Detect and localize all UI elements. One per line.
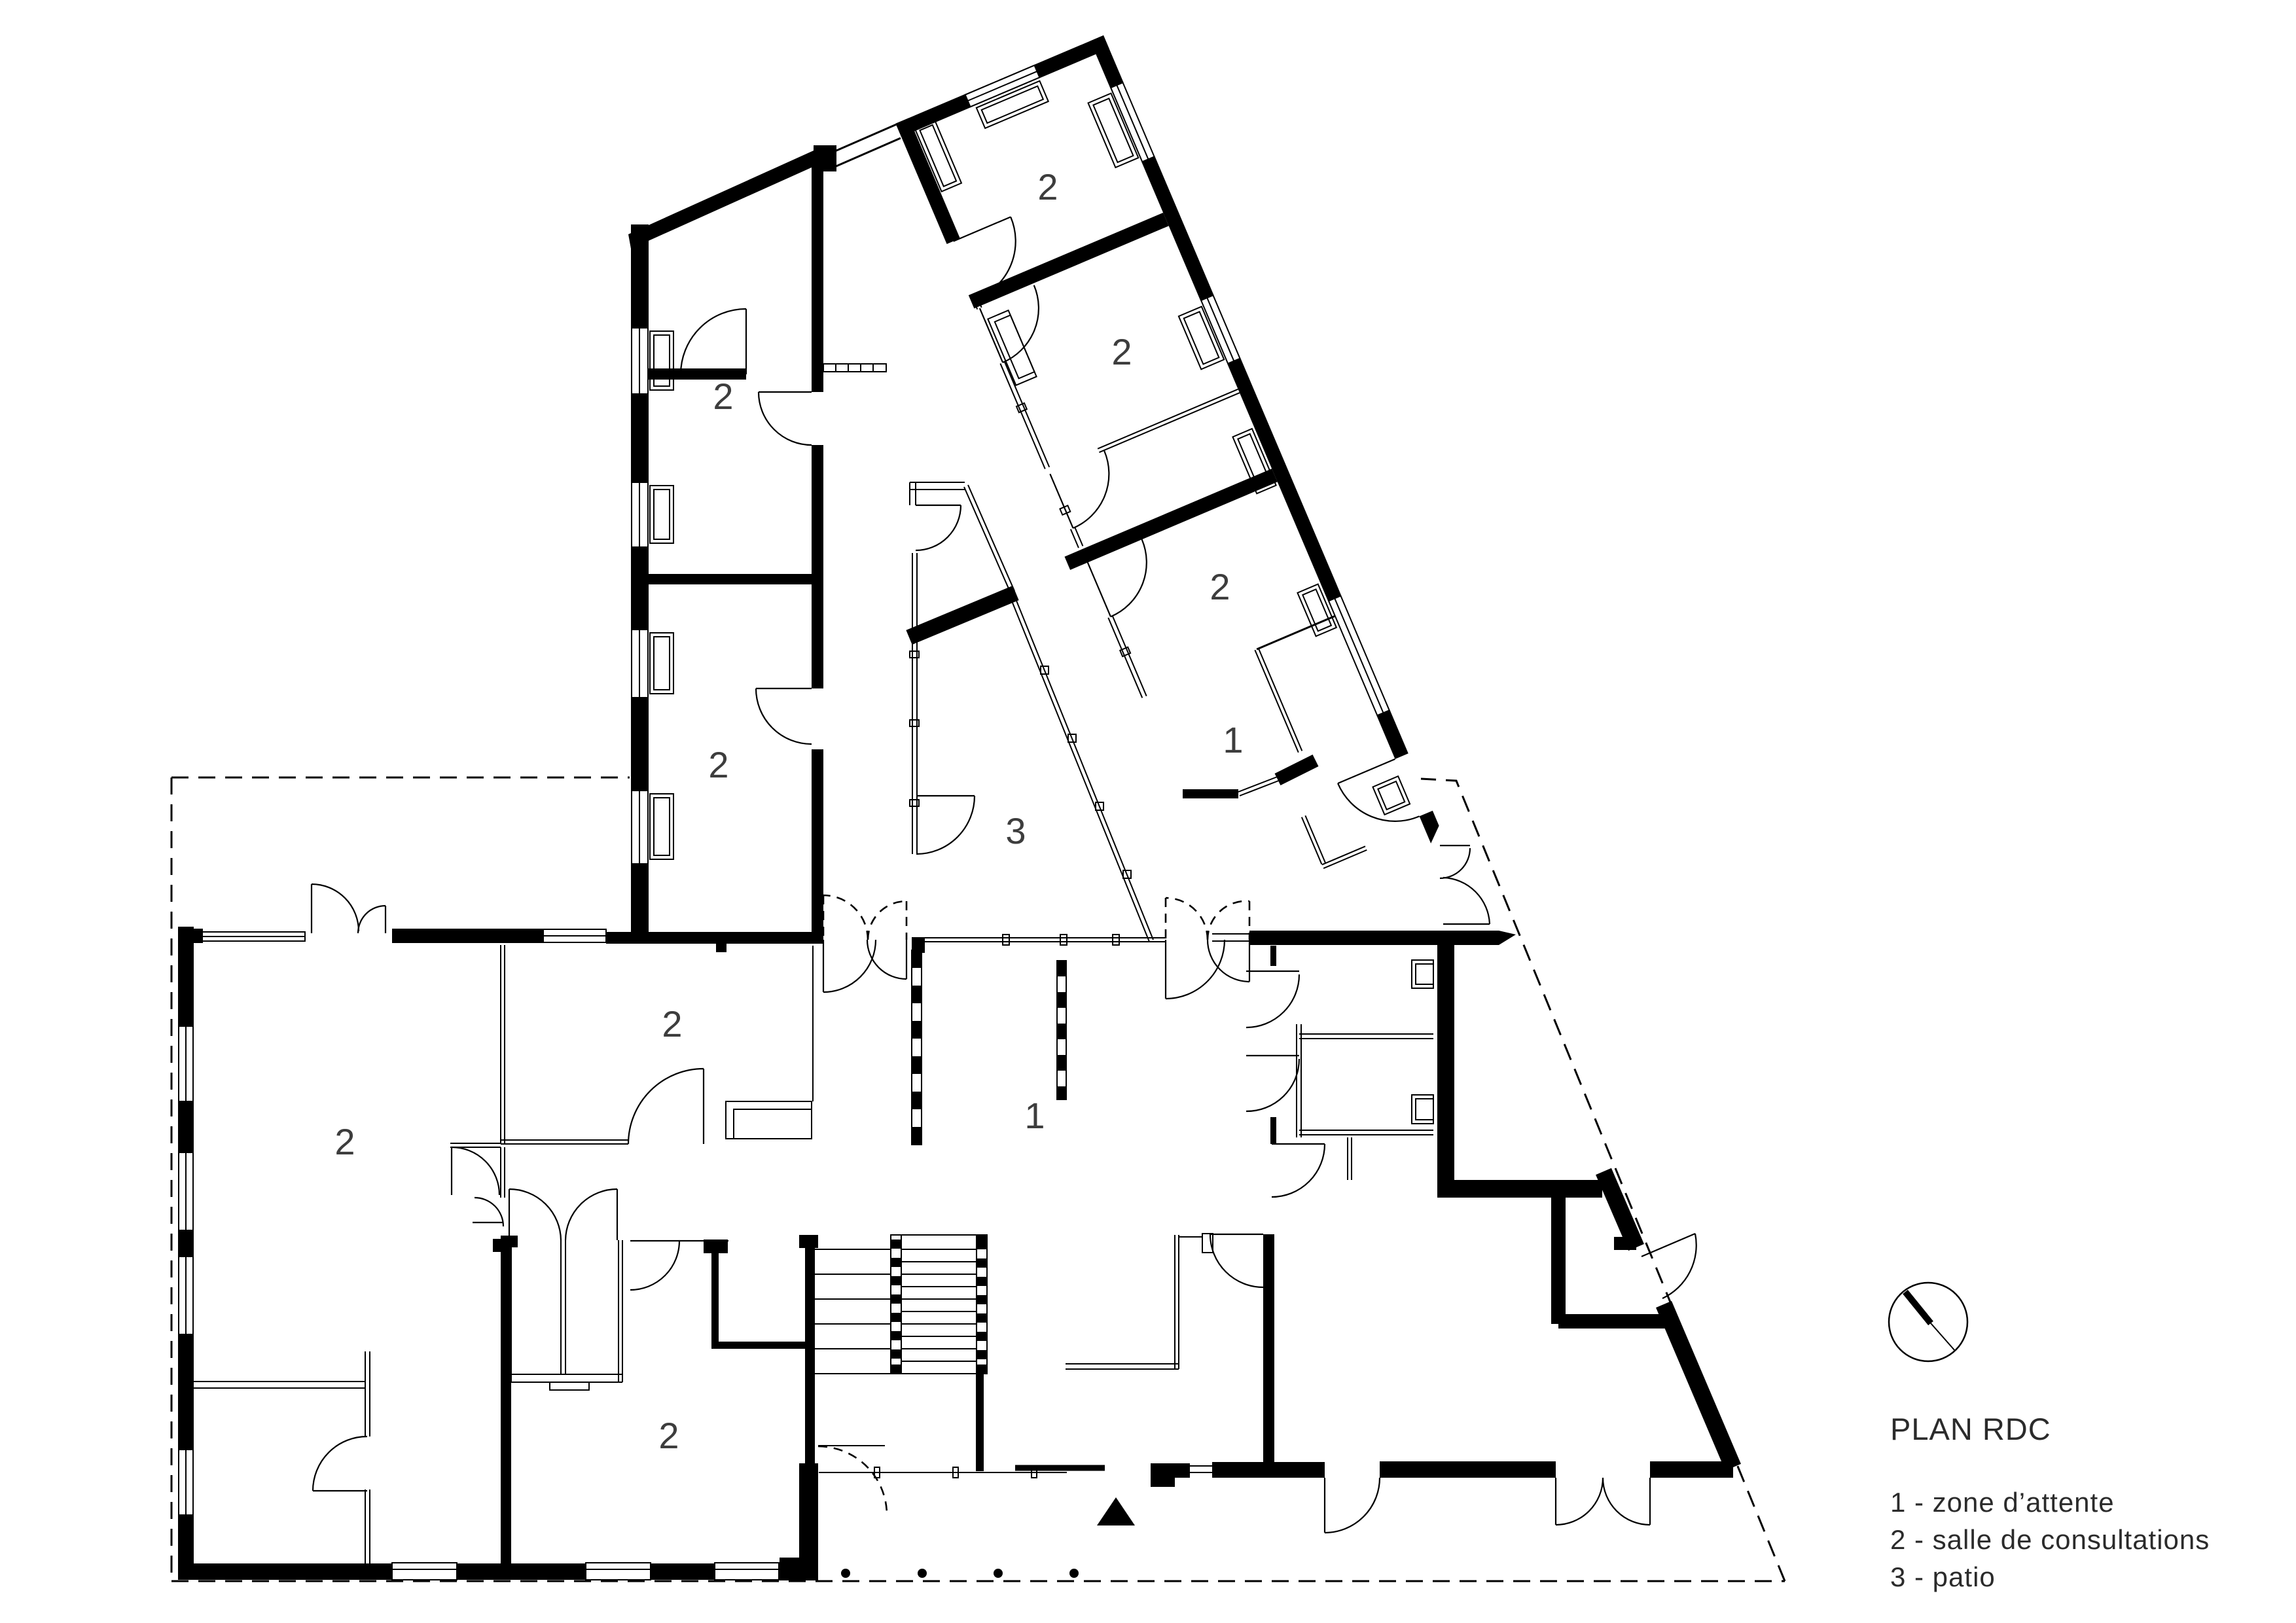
svg-text:2: 2 bbox=[713, 376, 733, 417]
svg-text:3: 3 bbox=[1005, 810, 1026, 851]
svg-text:2 - salle de consultations: 2 - salle de consultations bbox=[1890, 1524, 2210, 1555]
svg-text:1: 1 bbox=[1024, 1095, 1045, 1136]
svg-text:2: 2 bbox=[1111, 331, 1132, 372]
svg-text:2: 2 bbox=[708, 744, 728, 785]
svg-text:PLAN RDC: PLAN RDC bbox=[1890, 1412, 2051, 1446]
svg-text:3 - patio: 3 - patio bbox=[1890, 1561, 1996, 1592]
svg-text:2: 2 bbox=[1037, 166, 1058, 207]
svg-text:1: 1 bbox=[1223, 719, 1243, 760]
svg-text:2: 2 bbox=[334, 1121, 355, 1162]
svg-text:1 - zone d’attente: 1 - zone d’attente bbox=[1890, 1487, 2115, 1518]
svg-text:2: 2 bbox=[662, 1003, 682, 1044]
svg-text:2: 2 bbox=[658, 1415, 679, 1456]
svg-text:2: 2 bbox=[1210, 566, 1230, 607]
